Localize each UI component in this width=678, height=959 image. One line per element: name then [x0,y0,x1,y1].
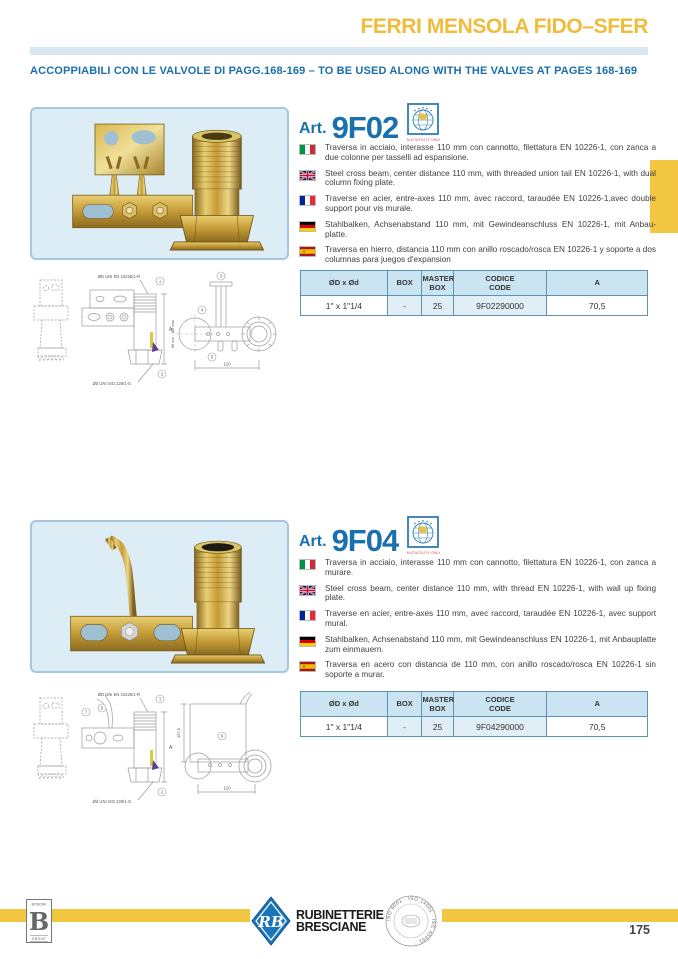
cell-code: 9F02290000 [453,296,547,316]
art-prefix-label: Art. [299,533,327,555]
art-code-9F02: 9F02 [332,113,399,142]
description-text: Traversa in acciaio, interasse 110 mm co… [325,143,656,163]
table-header-row: ØD x Ød BOX MASTER BOX CODICE CODE A [301,692,648,717]
technical-drawing-svg: ØD UNI EN 10226/1-R A Ød UNI ISO 228/1-G… [12,270,297,392]
description-row-spanish: Traversa en hierro, distancia 110 mm con… [299,245,656,265]
spec-table-9F04: ØD x Ød BOX MASTER BOX CODICE CODE A 1" … [300,691,648,737]
art-prefix-label: Art. [299,120,327,142]
col-header-a: A [547,692,648,717]
article-header-9F02: Art. 9F02 MULTIUTILITY ONLY [299,103,440,142]
thread-bottom-label: Ød UNI ISO 228/1-G [93,381,132,386]
cell-a: 70,5 [547,296,648,316]
description-list-9F04: Traversa in acciaio, interasse 110 mm co… [299,558,656,686]
table-row: 1" x 1"1/4 - 25 9F04290000 70,5 [301,717,648,737]
col-header-box: BOX [387,692,422,717]
thread-top-label: ØD UNI EN 10226/1-R [98,274,140,279]
spain-flag-icon [299,661,316,672]
col-header-master-box: MASTER BOX [422,271,453,296]
description-list-9F02: Traversa in acciaio, interasse 110 mm co… [299,143,656,271]
description-text: Traversa en acero con distancia de 110 m… [325,660,656,680]
description-text: Stahlbalken, Achsenabstand 110 mm, mit G… [325,635,656,655]
col-header-master-box: MASTER BOX [422,692,453,717]
description-row-italian: Traversa in acciaio, interasse 110 mm co… [299,143,656,163]
italy-flag-icon [299,559,316,570]
globe-cert-icon: MULTIUTILITY ONLY [407,516,440,558]
description-row-spanish: Traversa en acero con distancia de 110 m… [299,660,656,680]
water-certification-logo: MULTIUTILITY ONLY [407,516,440,563]
center-distance-dim: 110 [223,362,231,367]
iso-certification-stamp: ISO 9001 · ISO 14001 · ISO 45001 · [384,892,438,950]
cell-diameter: 1" x 1"1/4 [301,717,388,737]
uk-flag-icon [299,170,316,181]
description-row-italian: Traversa in acciaio, interasse 110 mm co… [299,558,656,578]
col-header-a: A [547,271,648,296]
product-photo-9F02 [30,107,289,260]
description-text: Traversa en hierro, distancia 110 mm con… [325,245,656,265]
col-header-diameter: ØD x Ød [301,271,388,296]
cell-code: 9F04290000 [453,717,547,737]
cell-master-box: 25 [422,717,453,737]
rb-monogram: RB [257,913,283,931]
rubinetterie-bresciane-logo: RB RUBINETTERIE BRESCIANE [250,896,384,946]
brass-fitting-image [32,522,287,671]
description-row-french: Traverse en acier, entre-axes 110 mm, av… [299,194,656,214]
globe-cert-icon: MULTIUTILITY ONLY [407,103,440,145]
title-underline-bar [30,47,648,55]
description-text: Traverse en acier, entre-axes 110 mm, av… [325,194,656,214]
description-row-english: Steel cross beam, center distance 110 mm… [299,169,656,189]
spain-flag-icon [299,246,316,257]
description-row-english: Steel cross beam, center distance 110 mm… [299,584,656,604]
cert-caption: MULTIUTILITY ONLY [407,551,440,555]
page-number: 175 [629,923,650,937]
cell-a: 70,5 [547,717,648,737]
cell-box: - [387,296,422,316]
bonomi-group-logo: BONOMI B GROUP [26,899,52,943]
thread-top-label: ØD UNI EN 10226/1-R [98,692,140,697]
iso-stamp-icon: ISO 9001 · ISO 14001 · ISO 45001 · [384,892,438,950]
description-text: Stahlbalken, Achsenabstand 110 mm, mit G… [325,220,656,240]
uk-flag-icon [299,585,316,596]
france-flag-icon [299,610,316,621]
group-logo-letter: B [29,907,49,936]
rb-diamond-icon: RB [250,896,292,946]
range-dim: 85 min - 180 max [171,320,175,348]
dim-a-label: A [169,745,173,751]
spec-table-9F02: ØD x Ød BOX MASTER BOX CODICE CODE A 1" … [300,270,648,316]
thread-bottom-label: Ød UNI ISO 228/1-G [93,799,132,804]
group-logo-top-text: BONOMI [32,903,47,907]
cell-diameter: 1" x 1"1/4 [301,296,388,316]
cert-caption: MULTIUTILITY ONLY [407,138,440,142]
description-text: Traversa in acciaio, interasse 110 mm co… [325,558,656,578]
col-header-box: BOX [387,271,422,296]
article-header-9F04: Art. 9F04 MULTIUTILITY ONLY [299,516,440,555]
col-header-code: CODICE CODE [453,271,547,296]
page-subtitle: ACCOPPIABILI CON LE VALVOLE DI PAGG.168-… [30,65,648,77]
col-header-code: CODICE CODE [453,692,547,717]
technical-drawing-9F02: ØD UNI EN 10226/1-R A Ød UNI ISO 228/1-G… [12,270,297,392]
group-logo-bottom-text: GROUP [32,937,46,941]
italy-flag-icon [299,144,316,155]
technical-drawing-9F04: ØD UNI EN 10226/1-R A Ød UNI ISO 228/1-G… [12,688,297,810]
table-header-row: ØD x Ød BOX MASTER BOX CODICE CODE A [301,271,648,296]
brand-name-line2: BRESCIANE [296,921,384,934]
cell-master-box: 25 [422,296,453,316]
footer-yellow-bar-right [442,909,678,922]
france-flag-icon [299,195,316,206]
cell-box: - [387,717,422,737]
germany-flag-icon [299,221,316,232]
description-row-german: Stahlbalken, Achsenabstand 110 mm, mit G… [299,220,656,240]
page-title: FERRI MENSOLA FIDO–SFER [360,15,648,39]
description-text: Traverse en acier, entre-axes 110 mm, av… [325,609,656,629]
center-distance-dim: 110 [223,786,231,791]
description-text: Steel cross beam, center distance 110 mm… [325,169,656,189]
product-photo-9F04 [30,520,289,673]
description-text: Steel cross beam, center distance 110 mm… [325,584,656,604]
technical-drawing-svg: ØD UNI EN 10226/1-R A Ød UNI ISO 228/1-G… [12,688,297,810]
height-dim: 157,5 [176,727,181,738]
table-row: 1" x 1"1/4 - 25 9F02290000 70,5 [301,296,648,316]
brand-name: RUBINETTERIE BRESCIANE [296,909,384,934]
art-code-9F04: 9F04 [332,526,399,555]
col-header-diameter: ØD x Ød [301,692,388,717]
bonomi-logo-icon: BONOMI B GROUP [26,899,52,943]
description-row-german: Stahlbalken, Achsenabstand 110 mm, mit G… [299,635,656,655]
germany-flag-icon [299,636,316,647]
catalog-page: FERRI MENSOLA FIDO–SFER ACCOPPIABILI CON… [0,0,678,959]
description-row-french: Traverse en acier, entre-axes 110 mm, av… [299,609,656,629]
brass-fitting-image [32,109,287,258]
